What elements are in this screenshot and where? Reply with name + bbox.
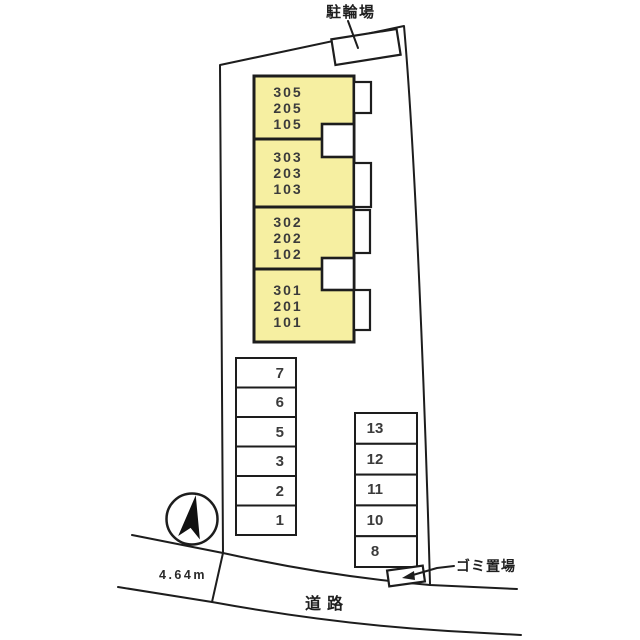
parking-space-number: 5: [276, 424, 284, 441]
building-annex-1: [354, 82, 371, 113]
parking-space: [236, 476, 296, 506]
parking-space-number: 2: [276, 483, 284, 500]
building-annex-4: [354, 290, 370, 330]
parking-space: [236, 447, 296, 477]
room-number: 303: [273, 149, 302, 165]
parking-space-number: 6: [276, 394, 284, 411]
parking-space-number: 8: [371, 543, 379, 560]
road-label: 道路: [305, 594, 349, 613]
parking-space: [355, 536, 417, 567]
parking-space: [236, 388, 296, 418]
site-plan-page: 道路 4.64m 駐輪場 305 205 105 303 203 103 302: [0, 0, 640, 640]
room-number: 302: [273, 214, 302, 230]
garbage-area-label: ゴミ置場: [456, 558, 516, 574]
parking-space: [355, 505, 417, 536]
parking-left-column: 7 6 5 3 2 1: [236, 358, 296, 535]
building-notch-2: [322, 258, 354, 290]
room-number: 101: [273, 314, 302, 330]
building-block: 305 205 105 303 203 103 302 202 102 301 …: [254, 76, 371, 342]
parking-space-number: 11: [367, 481, 383, 498]
building-annex-3: [354, 210, 370, 253]
building-annex-2: [354, 163, 371, 207]
parking-space: [236, 506, 296, 536]
parking-space-number: 3: [276, 453, 284, 470]
road-width-label: 4.64m: [159, 568, 207, 582]
room-number: 301: [273, 282, 302, 298]
parking-space: [236, 358, 296, 388]
room-number: 205: [273, 100, 302, 116]
parking-space-number: 10: [367, 512, 384, 529]
room-number: 105: [273, 116, 302, 132]
parking-space: [355, 475, 417, 506]
room-number: 103: [273, 181, 302, 197]
bicycle-parking-area: [331, 29, 400, 65]
parking-right-column: 13 12 11 10 8: [355, 413, 417, 567]
room-number: 102: [273, 246, 302, 262]
parking-space-number: 7: [276, 365, 284, 382]
parking-space-number: 13: [367, 420, 384, 437]
room-number: 203: [273, 165, 302, 181]
room-number: 305: [273, 84, 302, 100]
compass: [167, 494, 218, 545]
parking-space-number: 1: [276, 512, 284, 529]
parking-space: [355, 413, 417, 444]
room-number: 202: [273, 230, 302, 246]
bicycle-parking: 駐輪場: [326, 3, 401, 65]
road: 道路 4.64m: [118, 535, 521, 635]
parking-space-number: 12: [367, 451, 384, 468]
road-bend-line: [212, 553, 223, 602]
building-notch-1: [322, 124, 354, 157]
parking-space: [355, 444, 417, 475]
room-number: 201: [273, 298, 302, 314]
parking-space: [236, 417, 296, 447]
site-plan-canvas: 道路 4.64m 駐輪場 305 205 105 303 203 103 302: [0, 0, 640, 640]
bicycle-parking-label: 駐輪場: [326, 3, 376, 21]
